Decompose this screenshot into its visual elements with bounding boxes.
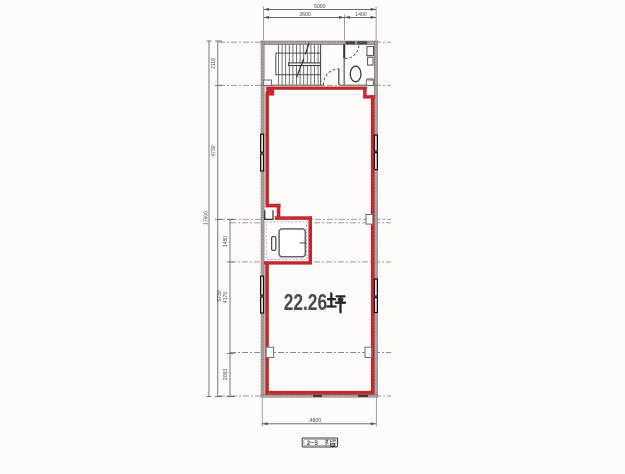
svg-text:2118: 2118 [211, 58, 217, 69]
svg-text:4175: 4175 [223, 292, 229, 303]
svg-text:2093: 2093 [223, 369, 229, 380]
svg-text:22.26: 22.26 [284, 289, 327, 315]
svg-text:4800: 4800 [310, 418, 322, 424]
svg-text:2~5: 2~5 [307, 440, 319, 447]
svg-text:5000: 5000 [314, 4, 326, 10]
svg-text:1400: 1400 [355, 12, 367, 18]
svg-text:17600: 17600 [203, 211, 209, 225]
svg-text:1480: 1480 [223, 236, 229, 247]
svg-text:5730: 5730 [217, 290, 223, 301]
svg-text:3600: 3600 [299, 12, 311, 18]
svg-text:4730: 4730 [211, 145, 217, 156]
